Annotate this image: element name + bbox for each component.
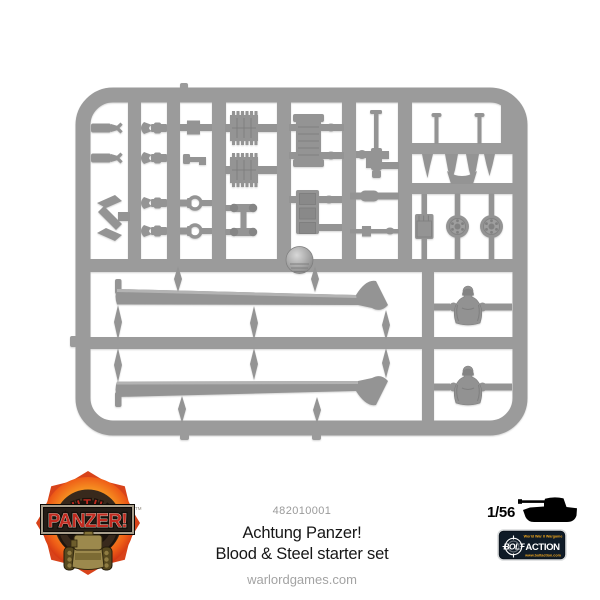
product-info: 482010001 Achtung Panzer! Blood & Steel … [150,505,454,587]
engine-grille-part [289,114,344,167]
product-code: 482010001 [150,505,454,517]
tow-hook-part [91,123,123,134]
road-wheel-part [480,194,503,261]
shackle-part [180,197,212,209]
periscope-part [183,154,206,165]
hatch-plate-part [225,153,277,187]
panzer-banner-text: PANZER! [48,511,128,532]
bolt-action-logo: World War II Wargame BOLT ACTION www.bol… [497,529,567,561]
y-bracket-part [97,195,130,241]
cupola-dome-part [286,247,313,274]
scale-block: 1/56 [487,496,577,523]
bolt-tagline: World War II Wargame [524,535,563,539]
track-guard-part-lower [115,376,388,407]
small-box-part [180,121,212,135]
barrel-pin-part [432,113,485,144]
track-guard-part-upper [115,279,388,310]
stowage-box-part [289,190,342,234]
bolt-word: BOLT [503,542,525,552]
product-sheet: ACHTUNG PANZER! PANZER! TM 482010001 Ach… [0,0,600,600]
clevis-fork-part [141,225,167,237]
tank-silhouette-icon [518,496,577,523]
website-url: warlordgames.com [150,572,454,587]
scale-label: 1/56 [487,504,515,521]
crew-figure-part [434,366,512,405]
road-wheel-part [446,194,469,261]
clevis-fork-part [141,152,167,164]
muzzle-blade-part [422,154,495,184]
panzer-banner: PANZER! PANZER! TM [42,506,142,533]
bolt-url: www.boltaction.com [524,554,561,558]
pull-rod-part [350,226,399,237]
product-title: Achtung Panzer! [150,523,454,544]
jerry-can-part [415,194,434,260]
shackle-part [180,225,212,237]
crew-figure-part [434,286,512,325]
trademark-mark: TM [135,506,142,511]
silencer-part [350,191,399,202]
clevis-fork-part [141,122,167,134]
clevis-fork-part [141,197,167,209]
sprue-photo [0,0,600,490]
achtung-panzer-logo: ACHTUNG PANZER! PANZER! TM [28,461,150,587]
tow-hook-part [91,153,123,164]
machine-gun-part [356,110,399,178]
axle-wheel-set-part [225,204,257,236]
product-subtitle: Blood & Steel starter set [150,544,454,565]
action-word: ACTION [525,542,560,553]
hatch-plate-part [225,111,277,145]
